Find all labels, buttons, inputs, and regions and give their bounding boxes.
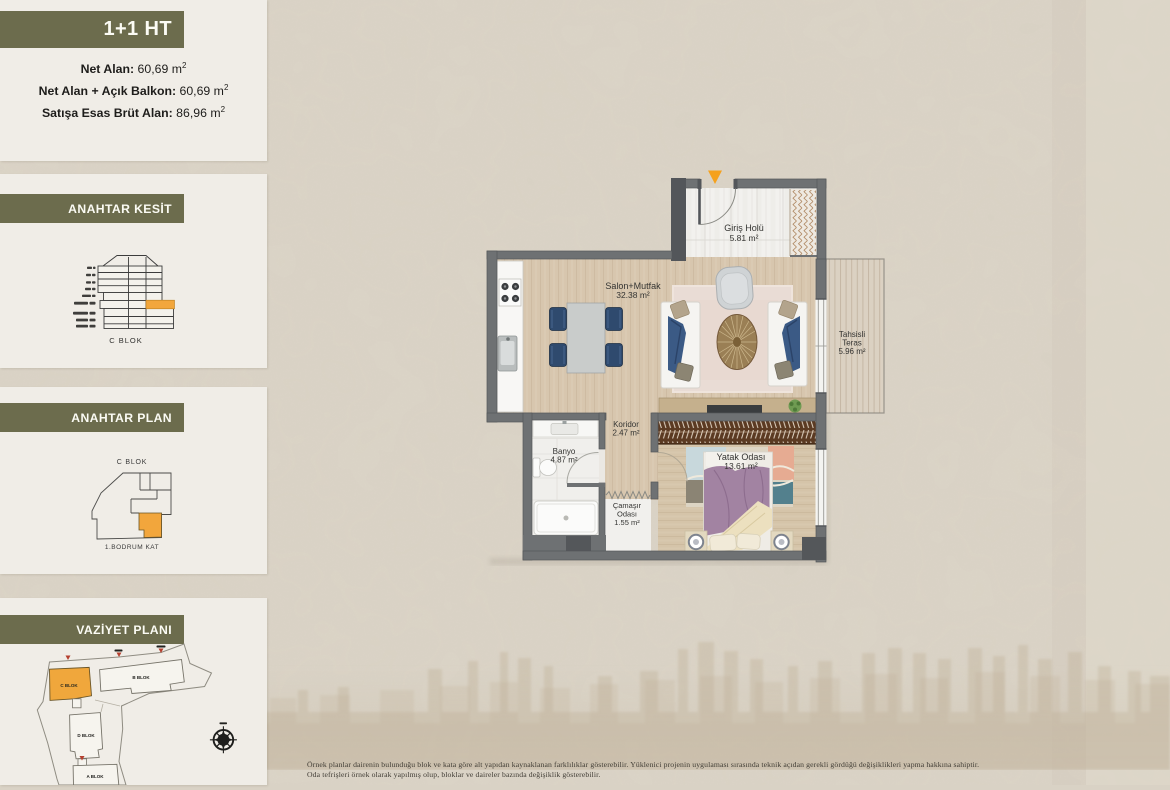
- svg-text:C BLOK: C BLOK: [60, 683, 78, 688]
- svg-text:C BLOK: C BLOK: [109, 336, 143, 345]
- svg-text:A BLOK: A BLOK: [86, 774, 104, 779]
- svg-text:4.87 m²: 4.87 m²: [550, 456, 577, 465]
- svg-text:5.96 m²: 5.96 m²: [838, 347, 865, 356]
- svg-text:5.81 m²: 5.81 m²: [730, 233, 759, 243]
- svg-text:13.61 m²: 13.61 m²: [724, 461, 758, 471]
- svg-text:B BLOK: B BLOK: [132, 675, 150, 680]
- svg-text:D BLOK: D BLOK: [77, 733, 95, 738]
- svg-text:32.38 m²: 32.38 m²: [616, 290, 650, 300]
- svg-text:1.55 m²: 1.55 m²: [614, 518, 640, 527]
- svg-text:1.BODRUM KAT: 1.BODRUM KAT: [105, 544, 159, 551]
- svg-text:Giriş Holü: Giriş Holü: [724, 223, 764, 233]
- svg-text:C BLOK: C BLOK: [117, 459, 147, 466]
- svg-text:2.47 m²: 2.47 m²: [612, 429, 639, 438]
